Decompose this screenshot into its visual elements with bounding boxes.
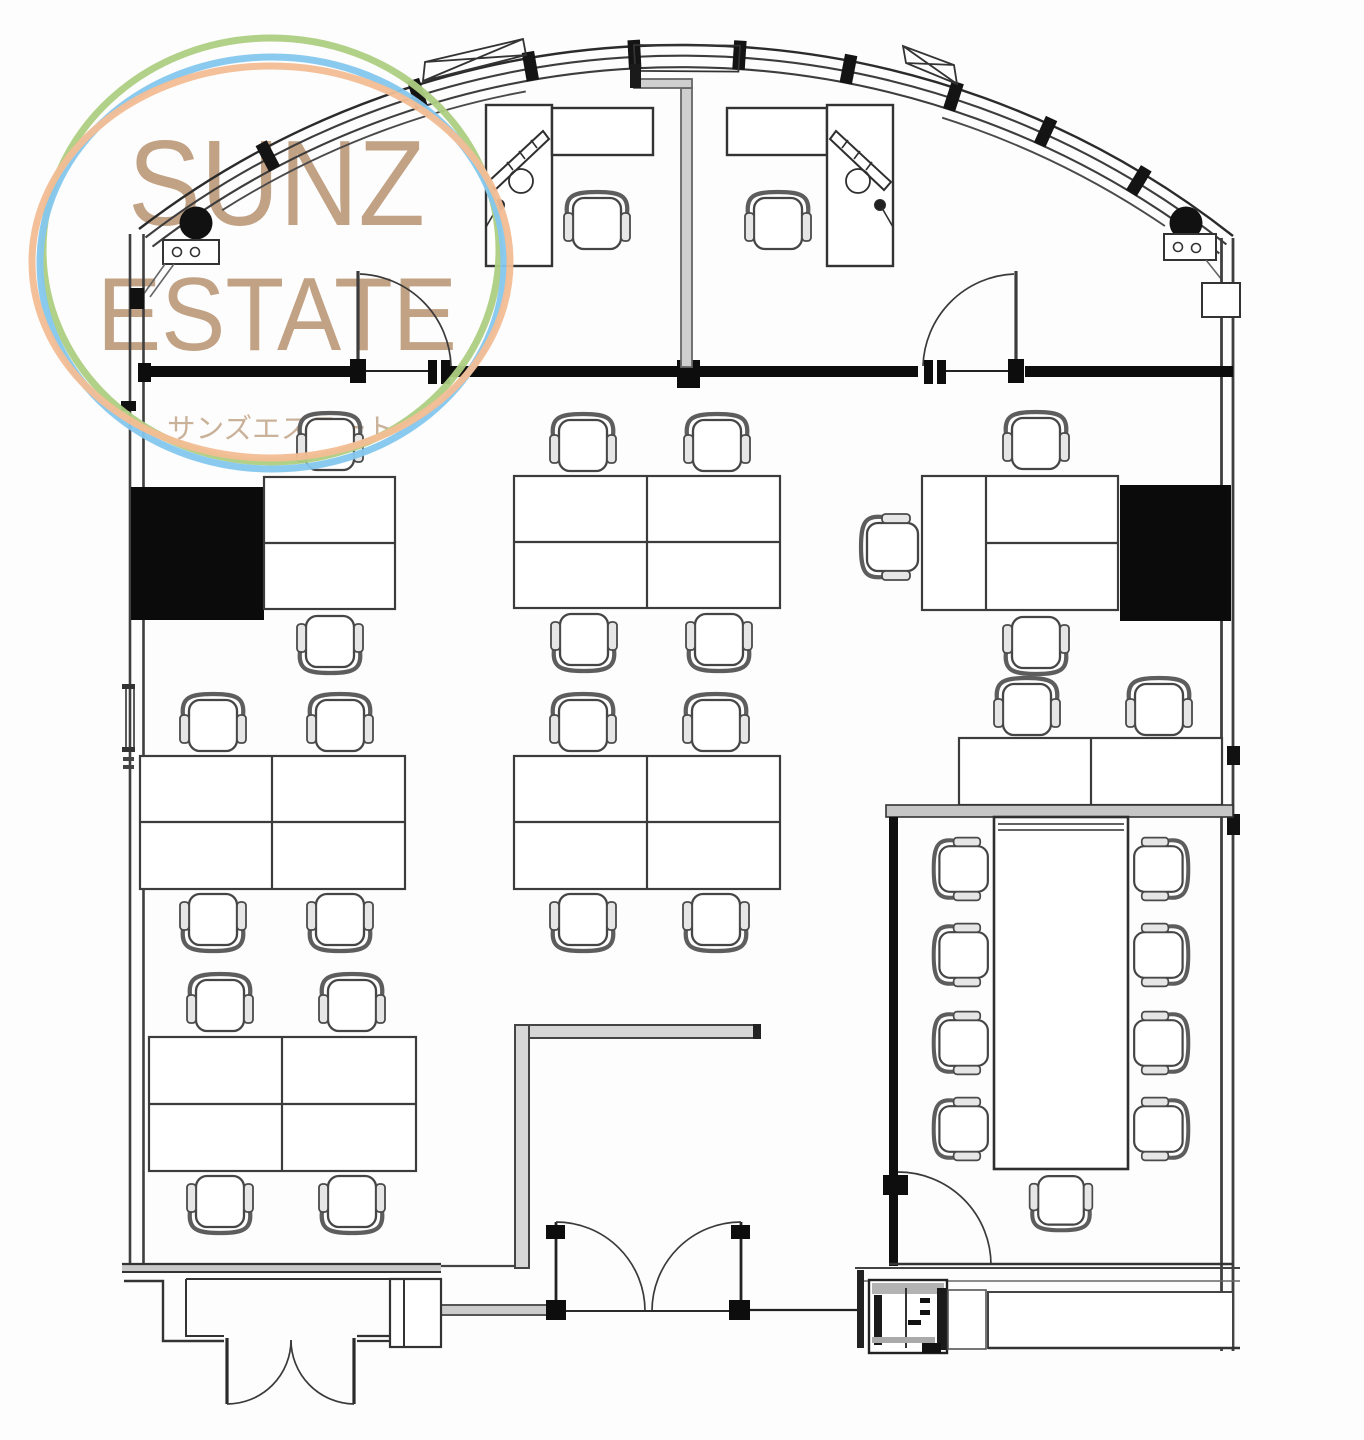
svg-text:ESTATE: ESTATE (97, 257, 457, 373)
